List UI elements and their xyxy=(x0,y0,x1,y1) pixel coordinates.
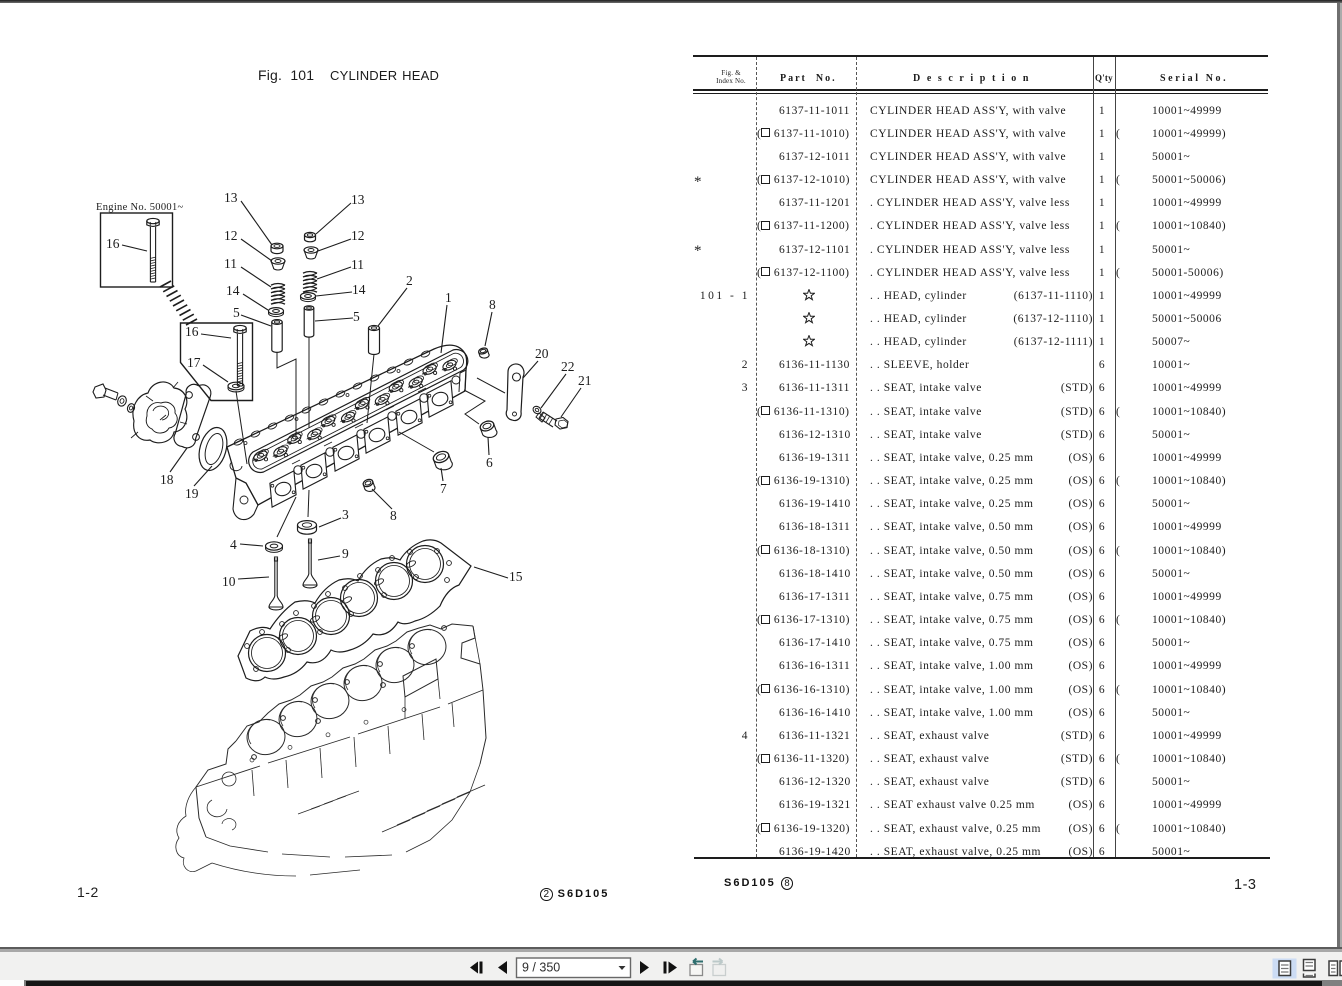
svg-text:3: 3 xyxy=(342,507,349,522)
svg-text:12: 12 xyxy=(224,228,238,243)
svg-text:2: 2 xyxy=(406,273,413,288)
svg-text:9 / 350: 9 / 350 xyxy=(522,961,560,975)
svg-text:16: 16 xyxy=(106,236,120,251)
svg-text:13: 13 xyxy=(351,192,365,207)
svg-text:14: 14 xyxy=(226,283,240,298)
svg-text:12: 12 xyxy=(351,228,365,243)
svg-text:Engine No. 50001~: Engine No. 50001~ xyxy=(96,202,183,213)
svg-text:13: 13 xyxy=(224,190,238,205)
svg-text:5: 5 xyxy=(233,305,240,320)
svg-text:9: 9 xyxy=(342,546,349,561)
svg-text:5: 5 xyxy=(353,309,360,324)
svg-text:15: 15 xyxy=(509,569,523,584)
svg-text:8: 8 xyxy=(390,508,397,523)
svg-text:7: 7 xyxy=(440,481,447,496)
svg-text:18: 18 xyxy=(160,472,174,487)
svg-text:19: 19 xyxy=(185,486,199,501)
svg-text:1: 1 xyxy=(445,290,452,305)
svg-text:4: 4 xyxy=(230,537,237,552)
svg-text:10: 10 xyxy=(222,574,236,589)
svg-text:14: 14 xyxy=(352,282,366,297)
svg-text:11: 11 xyxy=(224,256,237,271)
svg-text:6: 6 xyxy=(486,455,493,470)
svg-text:11: 11 xyxy=(351,257,364,272)
svg-text:21: 21 xyxy=(578,373,592,388)
svg-text:20: 20 xyxy=(535,346,549,361)
svg-text:16: 16 xyxy=(185,324,199,339)
svg-text:17: 17 xyxy=(187,355,201,370)
svg-text:22: 22 xyxy=(561,359,575,374)
svg-text:8: 8 xyxy=(489,297,496,312)
